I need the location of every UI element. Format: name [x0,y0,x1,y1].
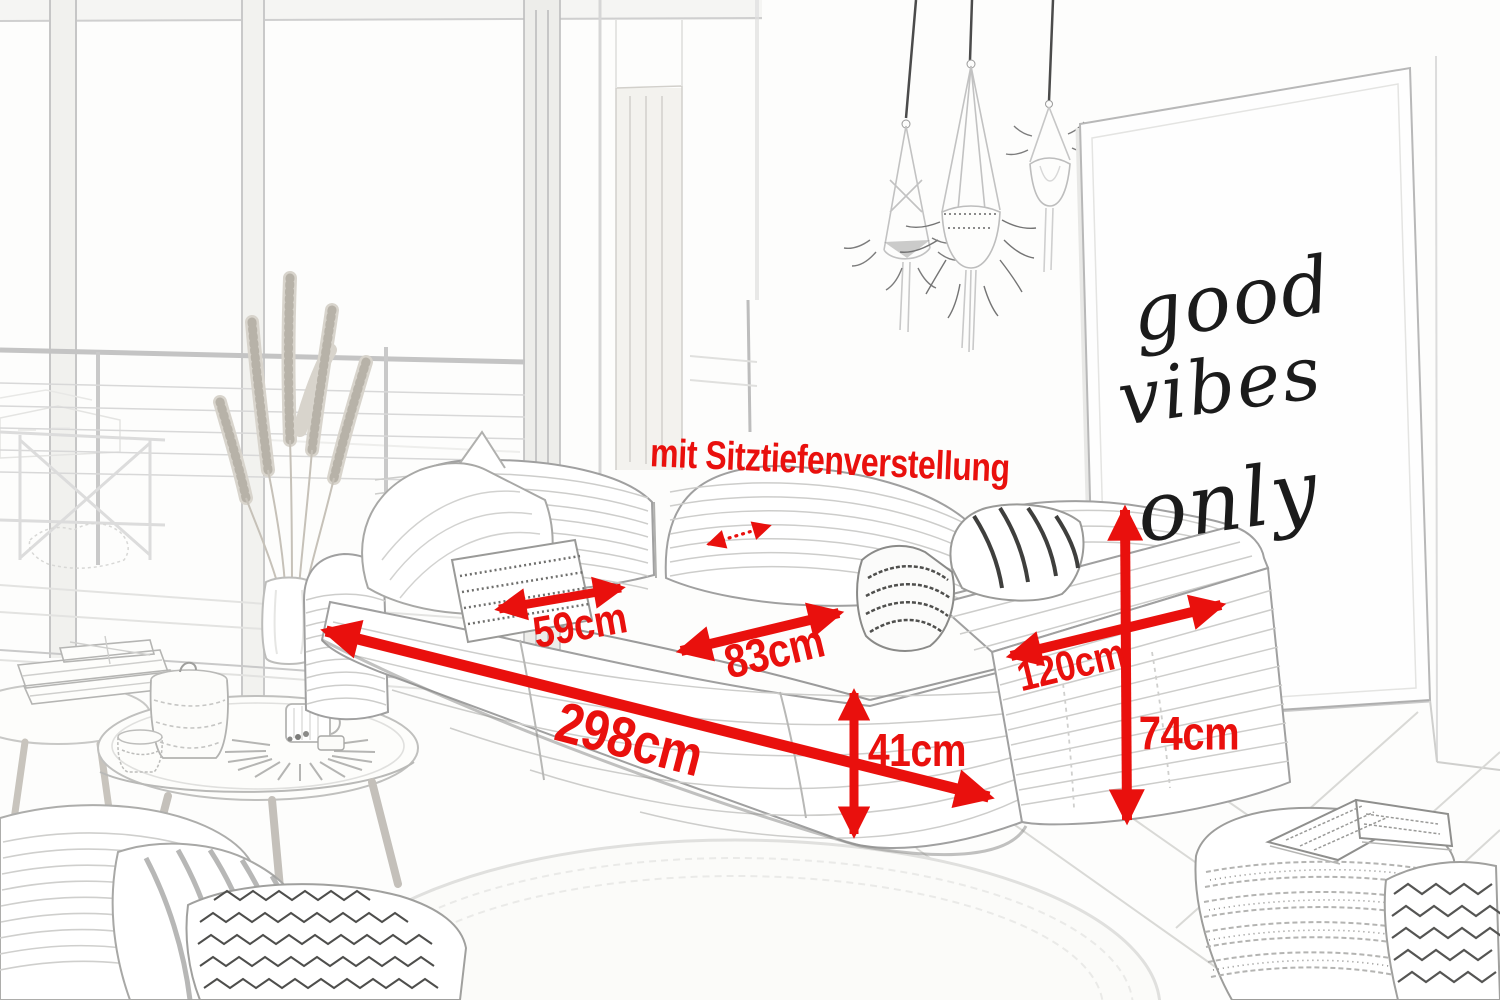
macrame-mid [942,66,1000,212]
dimension-label-base-height: 74cm [1139,710,1239,757]
macrame-left-tail [900,262,910,332]
macrame-right-tail [1044,208,1053,272]
armchair-sketch [0,805,466,1000]
hanger-hook-right [1046,101,1053,108]
berry-1 [295,734,301,740]
macrame-right [1030,107,1070,162]
macrame-right-pot [1030,158,1070,206]
window-left-frame [50,0,76,658]
berry-2 [303,731,309,737]
macrame-left [884,126,930,259]
macrame-mid-tail [962,270,976,352]
window-top-frame [0,0,762,20]
railing-right-segment [690,356,757,386]
hanger-cords [906,0,1053,118]
small-cup-rim [118,730,162,744]
wall-floor-line-right [1430,700,1500,770]
terrace-bush [29,523,128,568]
pillow-herringbone [857,546,954,651]
hanging-plants-sketch [844,0,1094,352]
dimension-label-seat-height: 41cm [868,727,966,773]
product-dimension-scene: good vibes only mit Sitztiefenverstellun… [0,0,1500,1000]
transom-lines [616,20,682,88]
distant-roofline [0,390,92,400]
wood-column [616,88,682,470]
waffle-snack [318,736,344,750]
berry-3 [288,737,293,742]
pouf-sketch [1195,800,1500,1000]
door-handle-bar [748,300,750,432]
pillow-striped [950,504,1083,600]
wall-corner-line [1436,56,1437,762]
